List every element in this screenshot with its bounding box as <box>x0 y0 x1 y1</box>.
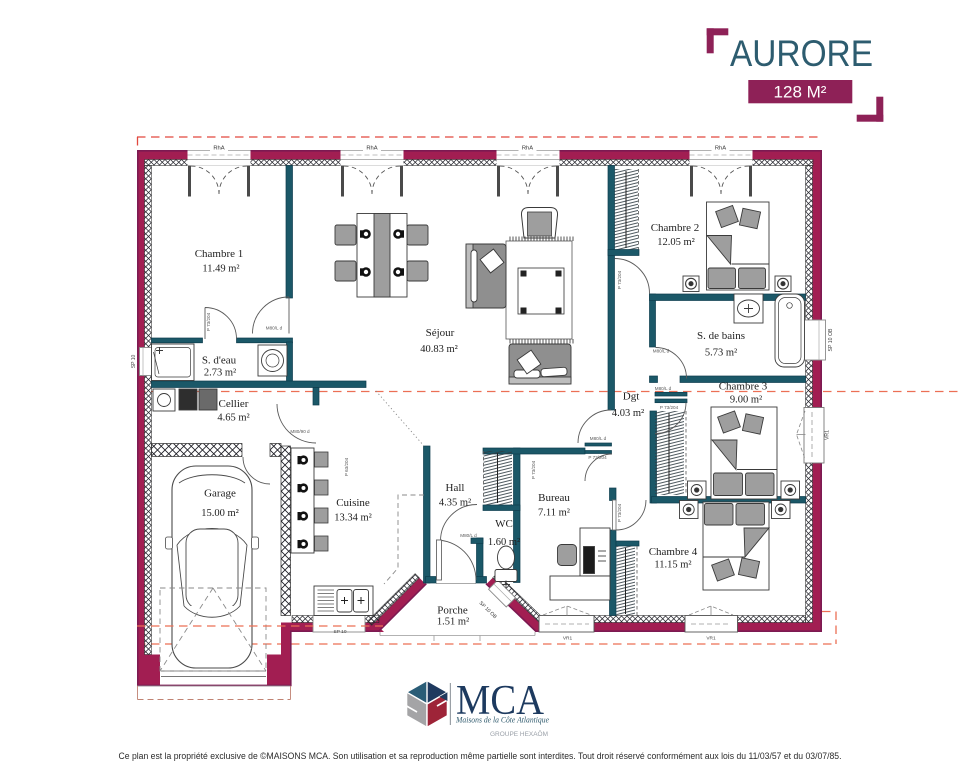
svg-text:40.83 m²: 40.83 m² <box>420 344 458 355</box>
svg-text:P 73/204: P 73/204 <box>206 312 211 331</box>
svg-text:VR1: VR1 <box>825 430 831 440</box>
svg-text:Chambre 4: Chambre 4 <box>649 546 698 558</box>
svg-text:M80/L d: M80/L d <box>653 349 670 354</box>
svg-text:RhA: RhA <box>715 146 726 152</box>
svg-text:4.35 m²: 4.35 m² <box>439 498 471 509</box>
svg-text:P 73/204: P 73/204 <box>531 460 536 479</box>
svg-text:11.15 m²: 11.15 m² <box>654 560 691 571</box>
svg-text:1.51 m²: 1.51 m² <box>437 617 469 628</box>
svg-text:WC: WC <box>495 518 513 530</box>
svg-text:5.73 m²: 5.73 m² <box>705 348 737 359</box>
svg-text:7.11 m²: 7.11 m² <box>538 508 570 519</box>
svg-text:2.73 m²: 2.73 m² <box>204 368 236 379</box>
svg-text:1.60 m²: 1.60 m² <box>488 537 520 548</box>
svg-text:RhA: RhA <box>366 146 377 152</box>
svg-text:RhA: RhA <box>213 146 224 152</box>
svg-text:12.05 m²: 12.05 m² <box>657 237 695 248</box>
svg-text:M80/L d: M80/L d <box>460 533 477 538</box>
svg-text:VR1: VR1 <box>563 636 573 642</box>
svg-text:4.03 m²: 4.03 m² <box>612 408 644 419</box>
svg-text:SP 10: SP 10 <box>334 629 347 635</box>
svg-text:P 73/204: P 73/204 <box>588 455 607 460</box>
svg-text:13.34 m²: 13.34 m² <box>334 513 372 524</box>
svg-text:S. d'eau: S. d'eau <box>202 355 237 367</box>
svg-text:SP 10 OB: SP 10 OB <box>828 328 834 352</box>
svg-text:P 63/204: P 63/204 <box>344 457 349 476</box>
svg-text:M80/L d: M80/L d <box>655 386 672 391</box>
svg-text:RhA: RhA <box>522 146 533 152</box>
svg-text:M80/L d: M80/L d <box>266 326 283 331</box>
svg-text:Dgt: Dgt <box>623 391 640 403</box>
svg-text:Séjour: Séjour <box>426 327 455 339</box>
svg-text:9.00 m²: 9.00 m² <box>730 395 762 406</box>
svg-text:Cellier: Cellier <box>219 398 249 410</box>
svg-text:SP 10 OB: SP 10 OB <box>478 600 499 620</box>
svg-text:P 73/204: P 73/204 <box>617 270 622 289</box>
svg-text:Cuisine: Cuisine <box>336 497 370 509</box>
svg-text:Ce plan est la propriété exclu: Ce plan est la propriété exclusive de ©M… <box>119 751 842 762</box>
svg-text:P 73/204: P 73/204 <box>660 405 679 410</box>
svg-text:Porche: Porche <box>437 605 468 617</box>
svg-text:Chambre 3: Chambre 3 <box>719 381 768 393</box>
svg-text:11.49 m²: 11.49 m² <box>202 264 239 275</box>
svg-text:SP 10: SP 10 <box>131 355 137 369</box>
svg-text:4.65 m²: 4.65 m² <box>217 413 249 424</box>
svg-text:GROUPE HEXAÔM: GROUPE HEXAÔM <box>490 729 548 738</box>
svg-text:128 M²: 128 M² <box>774 83 827 102</box>
svg-text:Maisons de la Côte Atlantique: Maisons de la Côte Atlantique <box>455 715 549 725</box>
svg-text:P 73/204: P 73/204 <box>617 503 622 522</box>
svg-text:Chambre 1: Chambre 1 <box>195 248 244 260</box>
svg-text:Bureau: Bureau <box>538 492 570 504</box>
svg-text:Hall: Hall <box>446 482 465 494</box>
svg-text:Garage: Garage <box>204 488 236 500</box>
svg-text:AURORE: AURORE <box>730 33 873 74</box>
svg-text:15.00 m²: 15.00 m² <box>201 508 239 519</box>
svg-text:Chambre 2: Chambre 2 <box>651 222 700 234</box>
svg-text:VR1: VR1 <box>706 636 716 642</box>
svg-text:M80/L d: M80/L d <box>590 436 607 441</box>
svg-text:M80/90 d: M80/90 d <box>290 429 310 434</box>
svg-text:S. de bains: S. de bains <box>697 330 745 342</box>
